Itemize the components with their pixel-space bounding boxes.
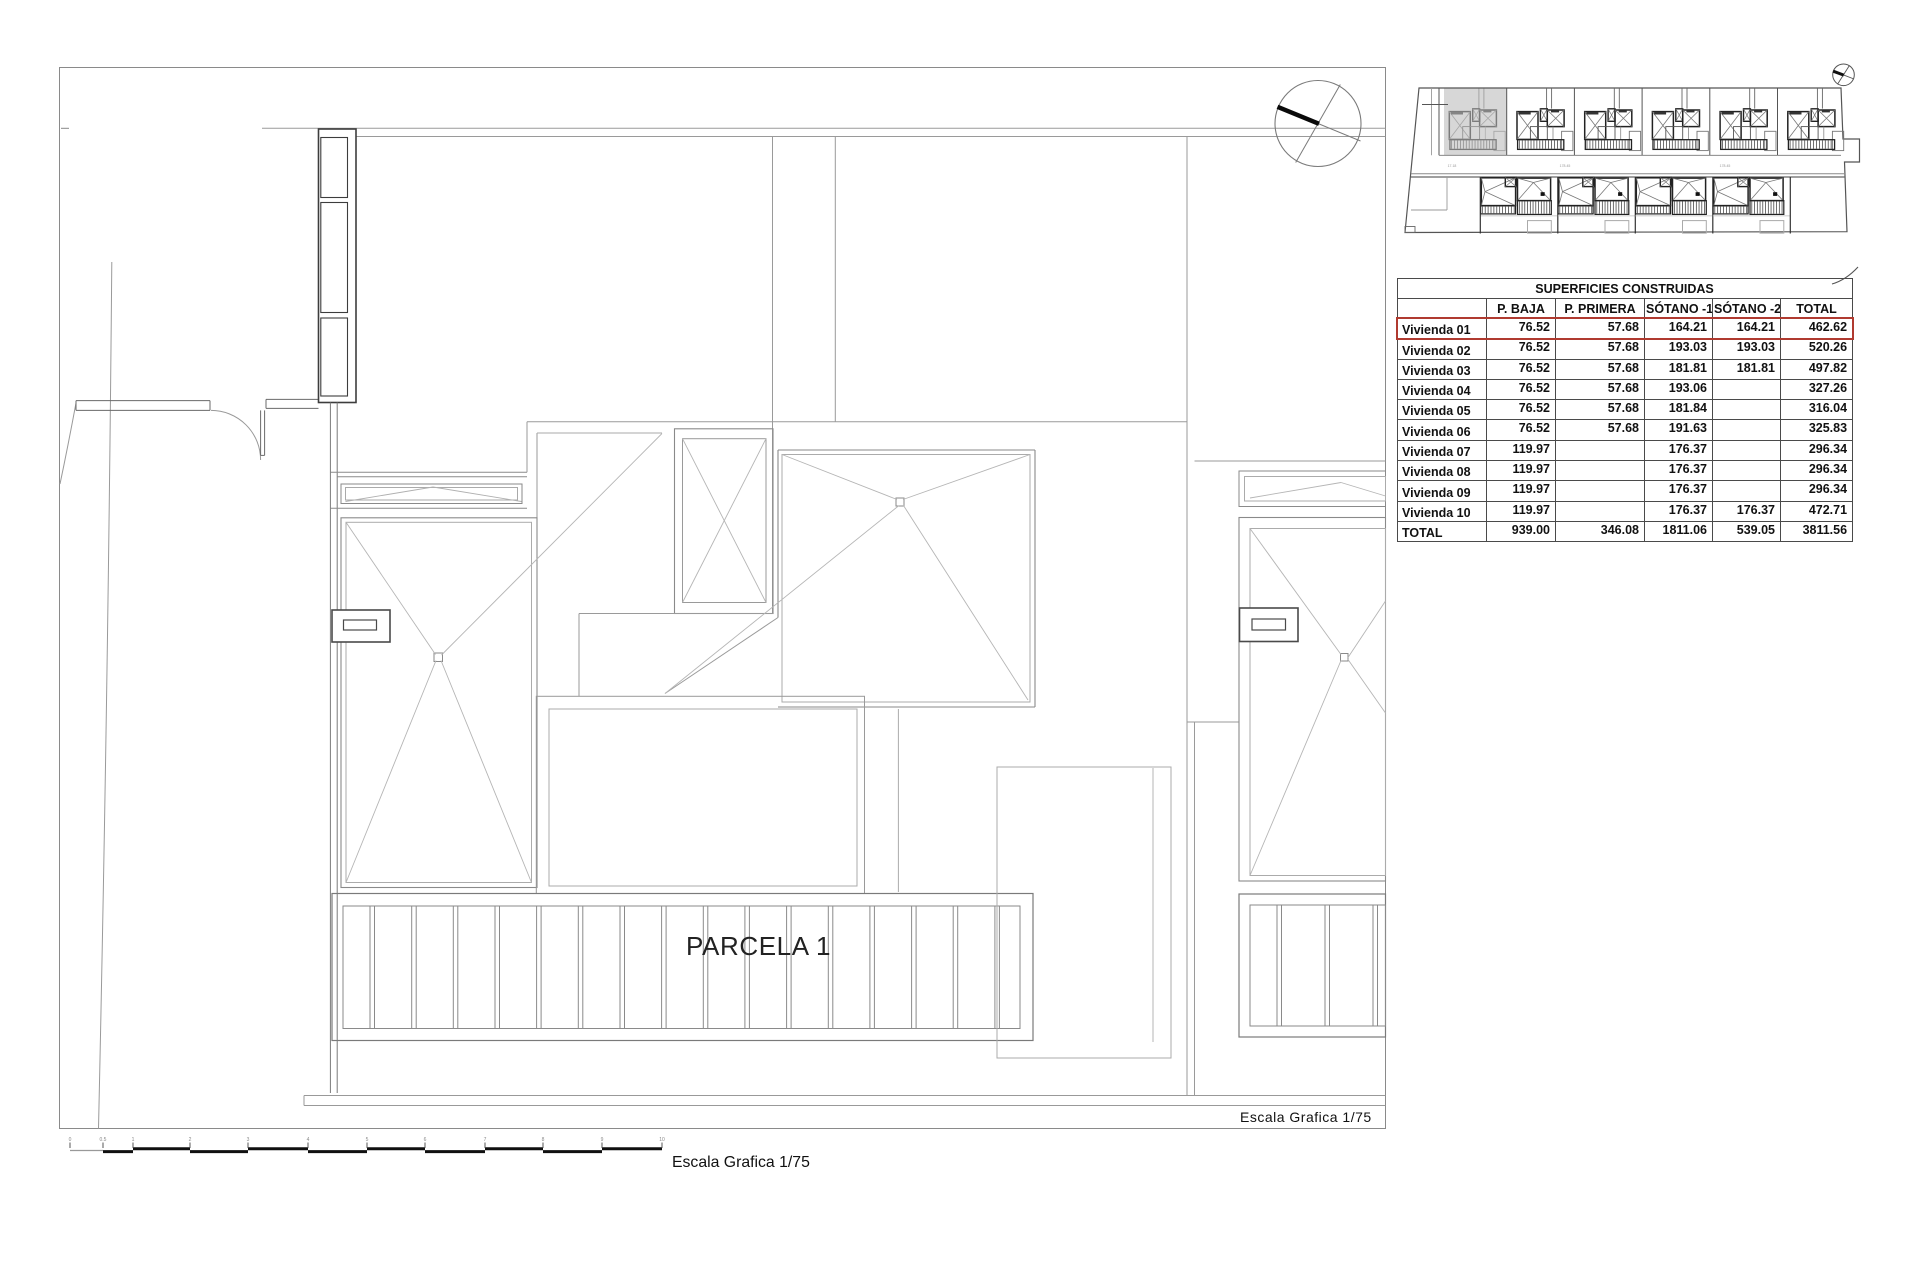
svg-text:9: 9 [601,1137,604,1143]
svg-text:7: 7 [484,1137,487,1143]
svg-text:0: 0 [69,1137,72,1143]
svg-text:17.18: 17.18 [1448,164,1457,168]
svg-text:178.45: 178.45 [1560,164,1571,168]
svg-text:2: 2 [189,1137,192,1143]
svg-text:10: 10 [659,1137,665,1143]
svg-text:178.45: 178.45 [1720,164,1731,168]
svg-text:3: 3 [247,1137,250,1143]
svg-text:1: 1 [132,1137,135,1143]
svg-text:0.5: 0.5 [100,1137,107,1143]
svg-text:4: 4 [307,1137,310,1143]
svg-text:8: 8 [542,1137,545,1143]
svg-text:6: 6 [424,1137,427,1143]
svg-text:5: 5 [366,1137,369,1143]
